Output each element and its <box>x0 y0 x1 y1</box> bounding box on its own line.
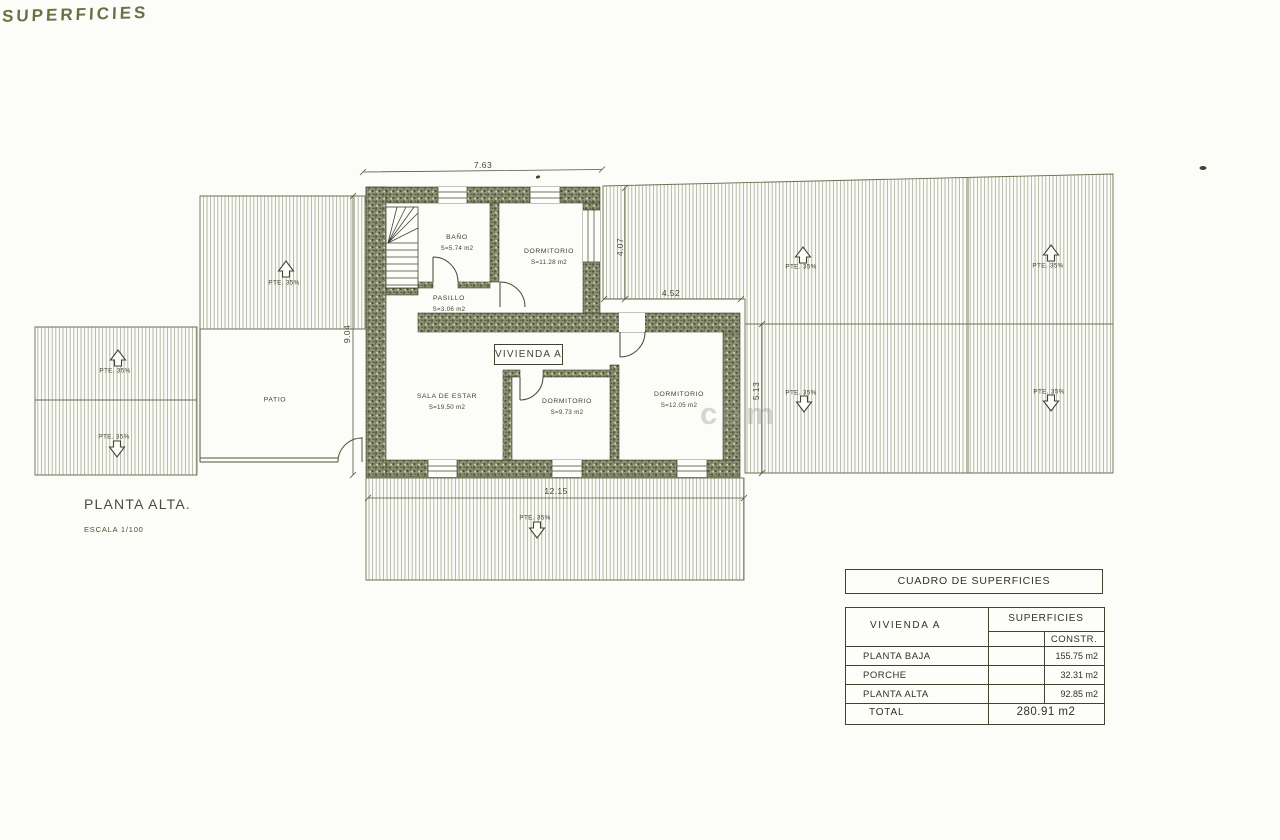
room-name: PATIO <box>264 396 286 407</box>
dimension-bottom-width: 12.15 <box>544 486 567 496</box>
table-row-label: PLANTA BAJA <box>863 651 931 662</box>
wall-lower-horizontal-a <box>503 370 520 377</box>
slope-label: PTE. 35% <box>99 368 130 375</box>
staircase <box>386 207 418 288</box>
wall-dorm-dorm <box>610 365 619 460</box>
room-label-bano: BAÑO S=5.74 m2 <box>441 233 474 253</box>
table-hline <box>846 646 1104 647</box>
room-name: DORMITORIO <box>654 390 704 401</box>
table-row-value: 32.31 m2 <box>1044 670 1098 680</box>
table-hline <box>846 684 1104 685</box>
room-name: SALA DE ESTAR <box>417 392 477 403</box>
room-label-pasillo: PASILLO S=3.06 m2 <box>433 294 466 314</box>
plan-title: PLANTA ALTA. <box>84 496 191 512</box>
plan-scale: ESCALA 1/100 <box>84 525 144 534</box>
wall-bano-bottom-b <box>458 282 490 288</box>
door-dorm-right <box>620 332 645 357</box>
room-label-dormitorio-3: DORMITORIO S=12.05 m2 <box>654 390 704 410</box>
dimension-left-height: 9.04 <box>342 325 352 343</box>
slope-label: PTE. 35% <box>519 515 550 522</box>
door-pasillo-dorm <box>500 282 525 307</box>
table-unit-header: VIVIENDA A <box>870 620 941 631</box>
room-label-dormitorio-1: DORMITORIO S=11.28 m2 <box>524 247 574 267</box>
slope-label: PTE. 35% <box>268 280 299 287</box>
table-row-label: PORCHE <box>863 670 907 681</box>
vivienda-label-box: VIVIENDA A <box>494 344 563 365</box>
wall-middle <box>418 313 740 332</box>
door-dorm-middle <box>520 377 543 400</box>
dimension-right-height: 5.13 <box>751 382 761 400</box>
roof-upper-left <box>200 196 365 329</box>
room-label-sala-de-estar: SALA DE ESTAR S=19.50 m2 <box>417 392 477 412</box>
room-name: DORMITORIO <box>542 397 592 408</box>
room-name: BAÑO <box>441 233 474 244</box>
dimension-right-setback: 4.52 <box>662 288 680 298</box>
scanned-floor-plan-page: { "page": { "handwritten_title": "SUPERF… <box>0 0 1280 840</box>
room-label-dormitorio-2: DORMITORIO S=9.73 m2 <box>542 397 592 417</box>
room-area: S=3.06 m2 <box>433 304 466 314</box>
table-row-value: 92.85 m2 <box>1044 689 1098 699</box>
wall-left <box>366 187 386 477</box>
roof-right-upper <box>603 174 1113 324</box>
room-label-patio: PATIO <box>264 396 286 407</box>
room-area: S=11.28 m2 <box>524 257 574 267</box>
wall-sala-dorm <box>503 377 512 460</box>
table-hline <box>846 665 1104 666</box>
table-row-value: 155.75 m2 <box>1044 651 1098 661</box>
room-name: DORMITORIO <box>524 247 574 258</box>
slope-label: PTE. 35% <box>1032 263 1063 270</box>
table-hline <box>988 631 1104 632</box>
table-row-label: PLANTA ALTA <box>863 689 929 700</box>
table-hline <box>846 703 1104 704</box>
wall-stair-stub <box>386 288 418 295</box>
dimension-upper-height: 4.07 <box>615 238 625 256</box>
room-area: S=12.05 m2 <box>654 400 704 410</box>
slope-label: PTE. 35% <box>785 390 816 397</box>
slope-label: PTE. 35% <box>1033 389 1064 396</box>
wall-bano-bottom-a <box>418 282 433 288</box>
table-total-value: 280.91 m2 <box>988 706 1104 718</box>
room-area: S=9.73 m2 <box>542 407 592 417</box>
dimension-top-width: 7.63 <box>474 160 492 170</box>
wall-top <box>366 187 600 203</box>
patio-door <box>338 437 362 462</box>
scan-watermark: com <box>700 396 779 432</box>
slope-label: PTE. 35% <box>98 434 129 441</box>
wall-bano-dorm <box>490 203 499 282</box>
door-bano <box>433 257 458 282</box>
room-name: PASILLO <box>433 294 466 305</box>
room-area: S=19.50 m2 <box>417 402 477 412</box>
table-col-superficies: SUPERFICIES <box>988 613 1104 624</box>
table-total-label: TOTAL <box>869 707 904 718</box>
room-area: S=5.74 m2 <box>441 243 474 253</box>
surface-table: VIVIENDA A SUPERFICIES CONSTR. PLANTA BA… <box>845 607 1105 725</box>
surface-table-title: CUADRO DE SUPERFICIES <box>845 569 1103 594</box>
wall-lower-horizontal-b <box>543 370 618 377</box>
slope-label: PTE. 35% <box>785 264 816 271</box>
table-col-constr: CONSTR. <box>1044 634 1104 645</box>
